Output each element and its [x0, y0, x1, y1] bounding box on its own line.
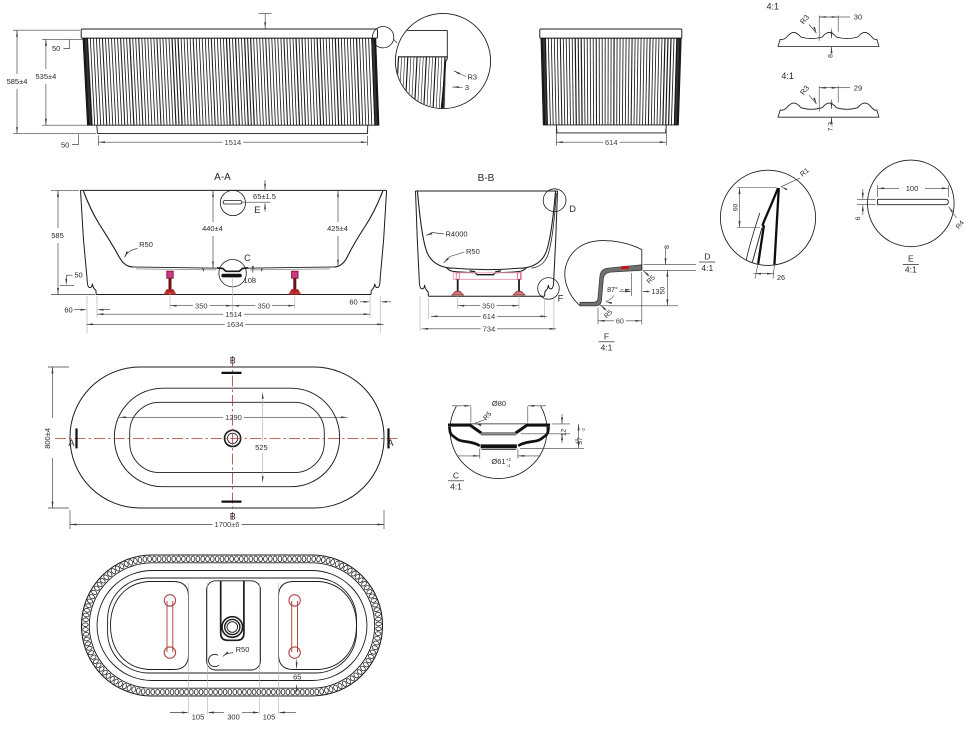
svg-text:R50: R50 [139, 240, 153, 249]
svg-text:R4000: R4000 [446, 230, 468, 239]
svg-text:50: 50 [660, 287, 667, 295]
svg-text:B-B: B-B [478, 173, 495, 184]
svg-text:R50: R50 [466, 247, 480, 256]
svg-text:E: E [908, 254, 914, 264]
svg-text:350: 350 [195, 301, 208, 310]
svg-text:108: 108 [244, 276, 257, 285]
svg-text:-1: -1 [507, 463, 511, 468]
svg-text:R50: R50 [236, 645, 250, 654]
svg-text:100: 100 [906, 184, 919, 193]
svg-text:4:1: 4:1 [781, 71, 794, 81]
svg-text:60: 60 [616, 316, 624, 325]
svg-text:4:1: 4:1 [450, 482, 462, 492]
svg-text:614: 614 [483, 312, 496, 321]
svg-text:1514: 1514 [225, 310, 242, 319]
svg-text:D: D [704, 252, 710, 262]
svg-text:E: E [254, 205, 260, 216]
svg-text:425±4: 425±4 [327, 224, 348, 233]
svg-text:350: 350 [257, 301, 270, 310]
svg-text:440±4: 440±4 [202, 224, 223, 233]
svg-text:7.3: 7.3 [828, 122, 835, 132]
svg-text:30: 30 [854, 13, 862, 22]
svg-text:60: 60 [732, 204, 739, 212]
svg-text:50: 50 [52, 44, 60, 53]
svg-text:105: 105 [192, 712, 205, 721]
svg-text:60: 60 [64, 305, 72, 314]
svg-text:C: C [244, 253, 251, 263]
svg-text:1700±6: 1700±6 [215, 520, 240, 529]
svg-text:4:1: 4:1 [601, 343, 613, 353]
svg-text:8: 8 [828, 54, 835, 58]
svg-text:6: 6 [855, 216, 862, 220]
svg-text:A-A: A-A [214, 172, 231, 183]
svg-text:300: 300 [227, 712, 240, 721]
svg-text:R3: R3 [468, 72, 478, 81]
svg-text:F: F [558, 294, 564, 305]
svg-text:1290: 1290 [225, 413, 242, 422]
svg-text:60: 60 [349, 298, 357, 307]
svg-text:585: 585 [51, 231, 64, 240]
svg-text:Ø61: Ø61 [491, 457, 505, 466]
svg-text:350: 350 [482, 301, 495, 310]
svg-text:50: 50 [61, 140, 69, 149]
svg-text:-2: -2 [581, 427, 586, 431]
svg-text:65±1.5: 65±1.5 [253, 192, 276, 201]
svg-text:12: 12 [560, 429, 567, 437]
svg-text:A: A [68, 438, 74, 448]
svg-text:+3: +3 [574, 438, 579, 443]
svg-text:29: 29 [854, 83, 862, 92]
svg-text:8: 8 [664, 245, 671, 249]
svg-text:26: 26 [777, 273, 785, 282]
svg-text:A: A [387, 438, 393, 448]
svg-text:C: C [453, 470, 459, 480]
svg-text:4:1: 4:1 [766, 2, 779, 12]
svg-text:585±4: 585±4 [7, 77, 28, 86]
svg-text:13: 13 [652, 287, 660, 296]
svg-text:525: 525 [255, 443, 268, 452]
svg-text:614: 614 [605, 138, 618, 147]
svg-text:1634: 1634 [227, 320, 244, 329]
svg-text:Ø80: Ø80 [492, 399, 506, 408]
svg-text:B: B [230, 355, 236, 365]
svg-text:65: 65 [293, 673, 301, 682]
svg-text:105: 105 [263, 712, 276, 721]
svg-text:800±4: 800±4 [43, 428, 52, 449]
svg-text:F: F [604, 332, 609, 342]
svg-text:734: 734 [483, 324, 496, 333]
svg-text:3: 3 [465, 83, 469, 92]
svg-text:1514: 1514 [225, 138, 242, 147]
svg-text:535±4: 535±4 [35, 72, 56, 81]
svg-text:D: D [569, 204, 576, 215]
svg-text:50: 50 [74, 271, 82, 280]
svg-text:+2: +2 [506, 457, 511, 462]
svg-text:87°: 87° [607, 285, 618, 294]
svg-text:4:1: 4:1 [905, 264, 917, 274]
svg-text:4:1: 4:1 [701, 263, 713, 273]
